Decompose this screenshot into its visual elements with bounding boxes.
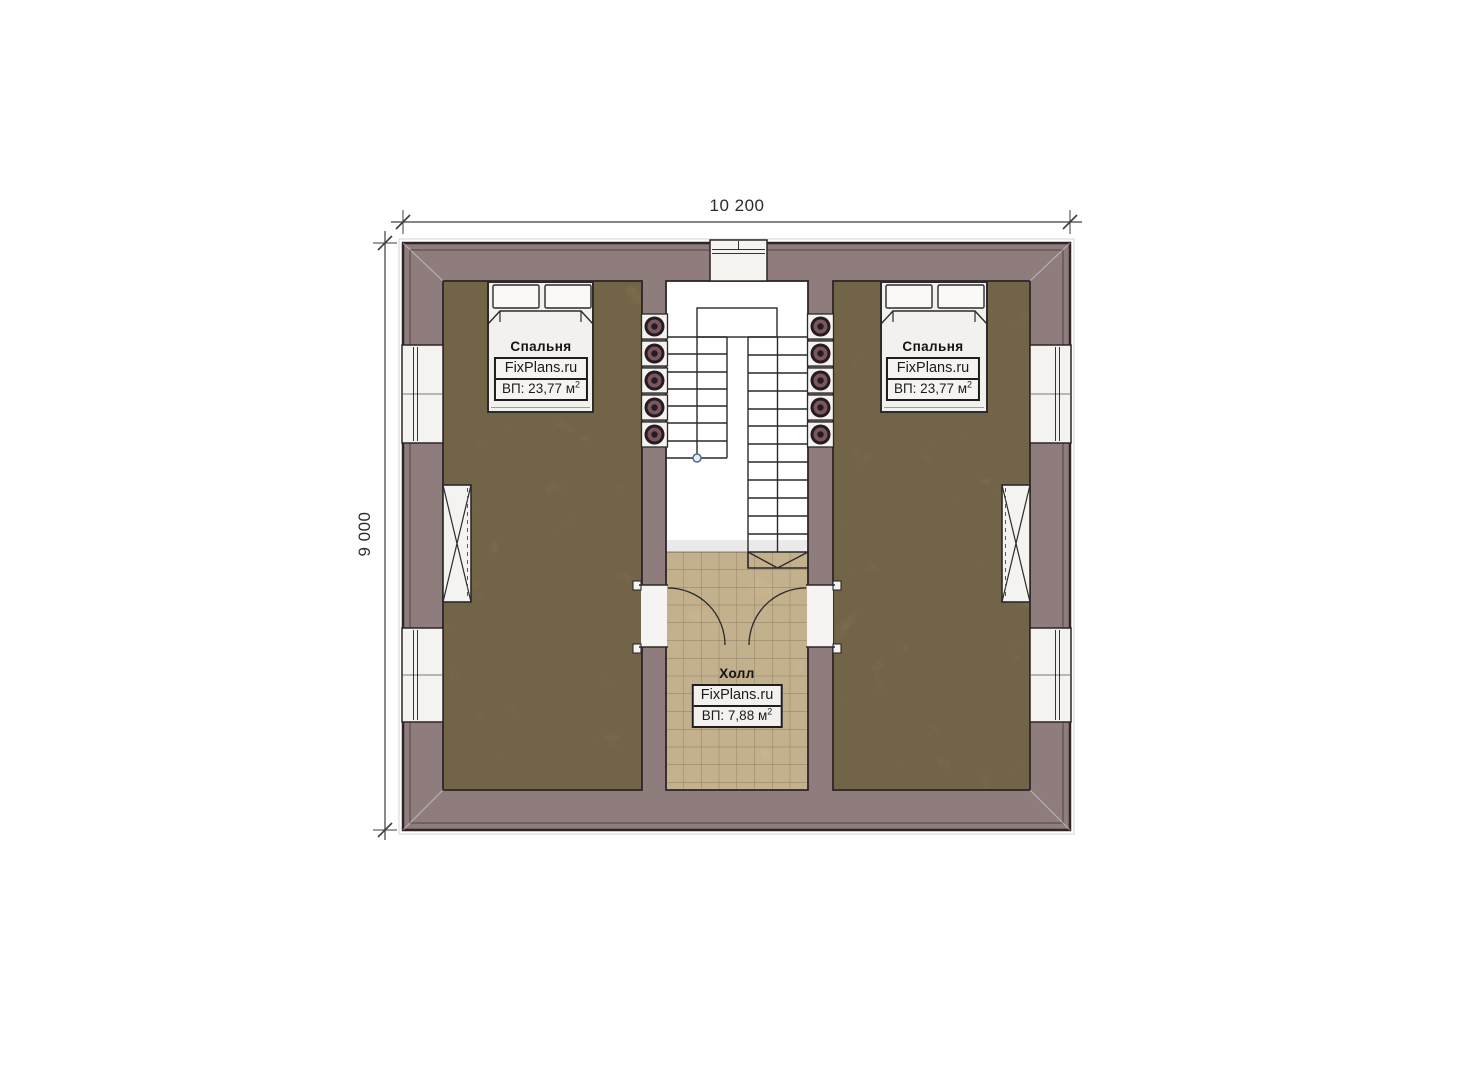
stair-start-marker (693, 454, 701, 462)
room-name: Спальня (902, 339, 963, 354)
window-left-lower (402, 628, 443, 722)
window-right-lower (1030, 628, 1071, 722)
dimension-width-label: 10 200 (687, 196, 787, 216)
pillow (545, 285, 591, 308)
pillow (886, 285, 932, 308)
pillow (938, 285, 984, 308)
window-left-upper (402, 345, 443, 443)
room-info-box: FixPlans.ru ВП: 23,77 м2 (886, 357, 980, 401)
stairwell-floor (666, 281, 808, 552)
room-label-bedroom-left: Спальня FixPlans.ru ВП: 23,77 м2 (494, 339, 588, 401)
brand-watermark: FixPlans.ru (888, 359, 978, 380)
room-area-sup: 2 (575, 380, 580, 390)
closet-right (1002, 485, 1030, 602)
room-area: ВП: 23,77 м2 (888, 380, 978, 399)
room-label-hall: Холл FixPlans.ru ВП: 7,88 м2 (692, 666, 783, 728)
room-area-value: ВП: 7,88 м (702, 708, 768, 723)
room-name: Спальня (510, 339, 571, 354)
room-area-value: ВП: 23,77 м (502, 381, 575, 396)
dimension-height-label: 9 000 (355, 472, 375, 596)
room-area-sup: 2 (767, 707, 772, 717)
baluster-row-right (808, 314, 834, 447)
room-area: ВП: 7,88 м2 (694, 707, 781, 726)
window-top-center (710, 240, 767, 281)
floorplan-drawing (0, 0, 1473, 1080)
brand-watermark: FixPlans.ru (496, 359, 586, 380)
pillow (493, 285, 539, 308)
baluster-row-left (642, 314, 668, 447)
dimension-left (373, 231, 397, 840)
room-area: ВП: 23,77 м2 (496, 380, 586, 399)
room-area-sup: 2 (967, 380, 972, 390)
room-area-value: ВП: 23,77 м (894, 381, 967, 396)
room-info-box: FixPlans.ru ВП: 7,88 м2 (692, 684, 783, 728)
room-info-box: FixPlans.ru ВП: 23,77 м2 (494, 357, 588, 401)
room-name: Холл (719, 666, 755, 681)
room-label-bedroom-right: Спальня FixPlans.ru ВП: 23,77 м2 (886, 339, 980, 401)
window-right-upper (1030, 345, 1071, 443)
floorplan-canvas: 10 200 9 000 Спальня FixPlans.ru ВП: 23,… (0, 0, 1473, 1080)
brand-watermark: FixPlans.ru (694, 686, 781, 707)
closet-left (443, 485, 471, 602)
